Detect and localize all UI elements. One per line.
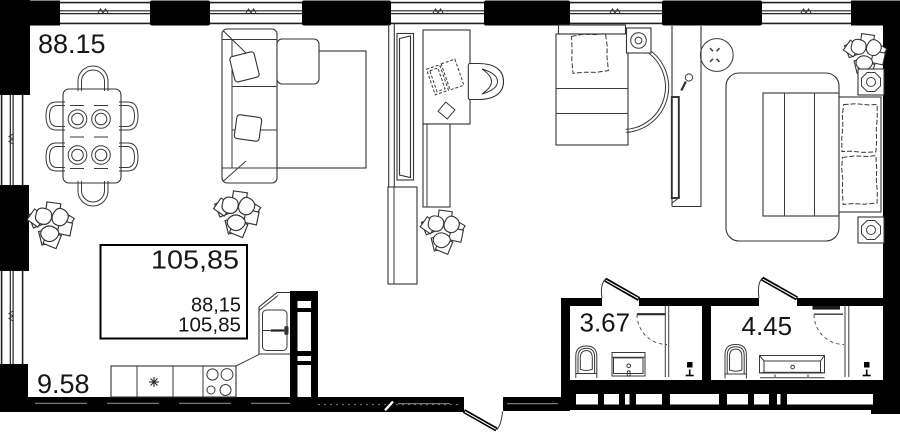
svg-text:88.15: 88.15: [38, 29, 106, 59]
svg-text:105,85: 105,85: [151, 247, 239, 275]
svg-text:105,85: 105,85: [178, 314, 241, 337]
svg-text:9.58: 9.58: [37, 369, 90, 399]
svg-text:3.67: 3.67: [580, 308, 631, 338]
svg-text:4.45: 4.45: [742, 311, 793, 341]
